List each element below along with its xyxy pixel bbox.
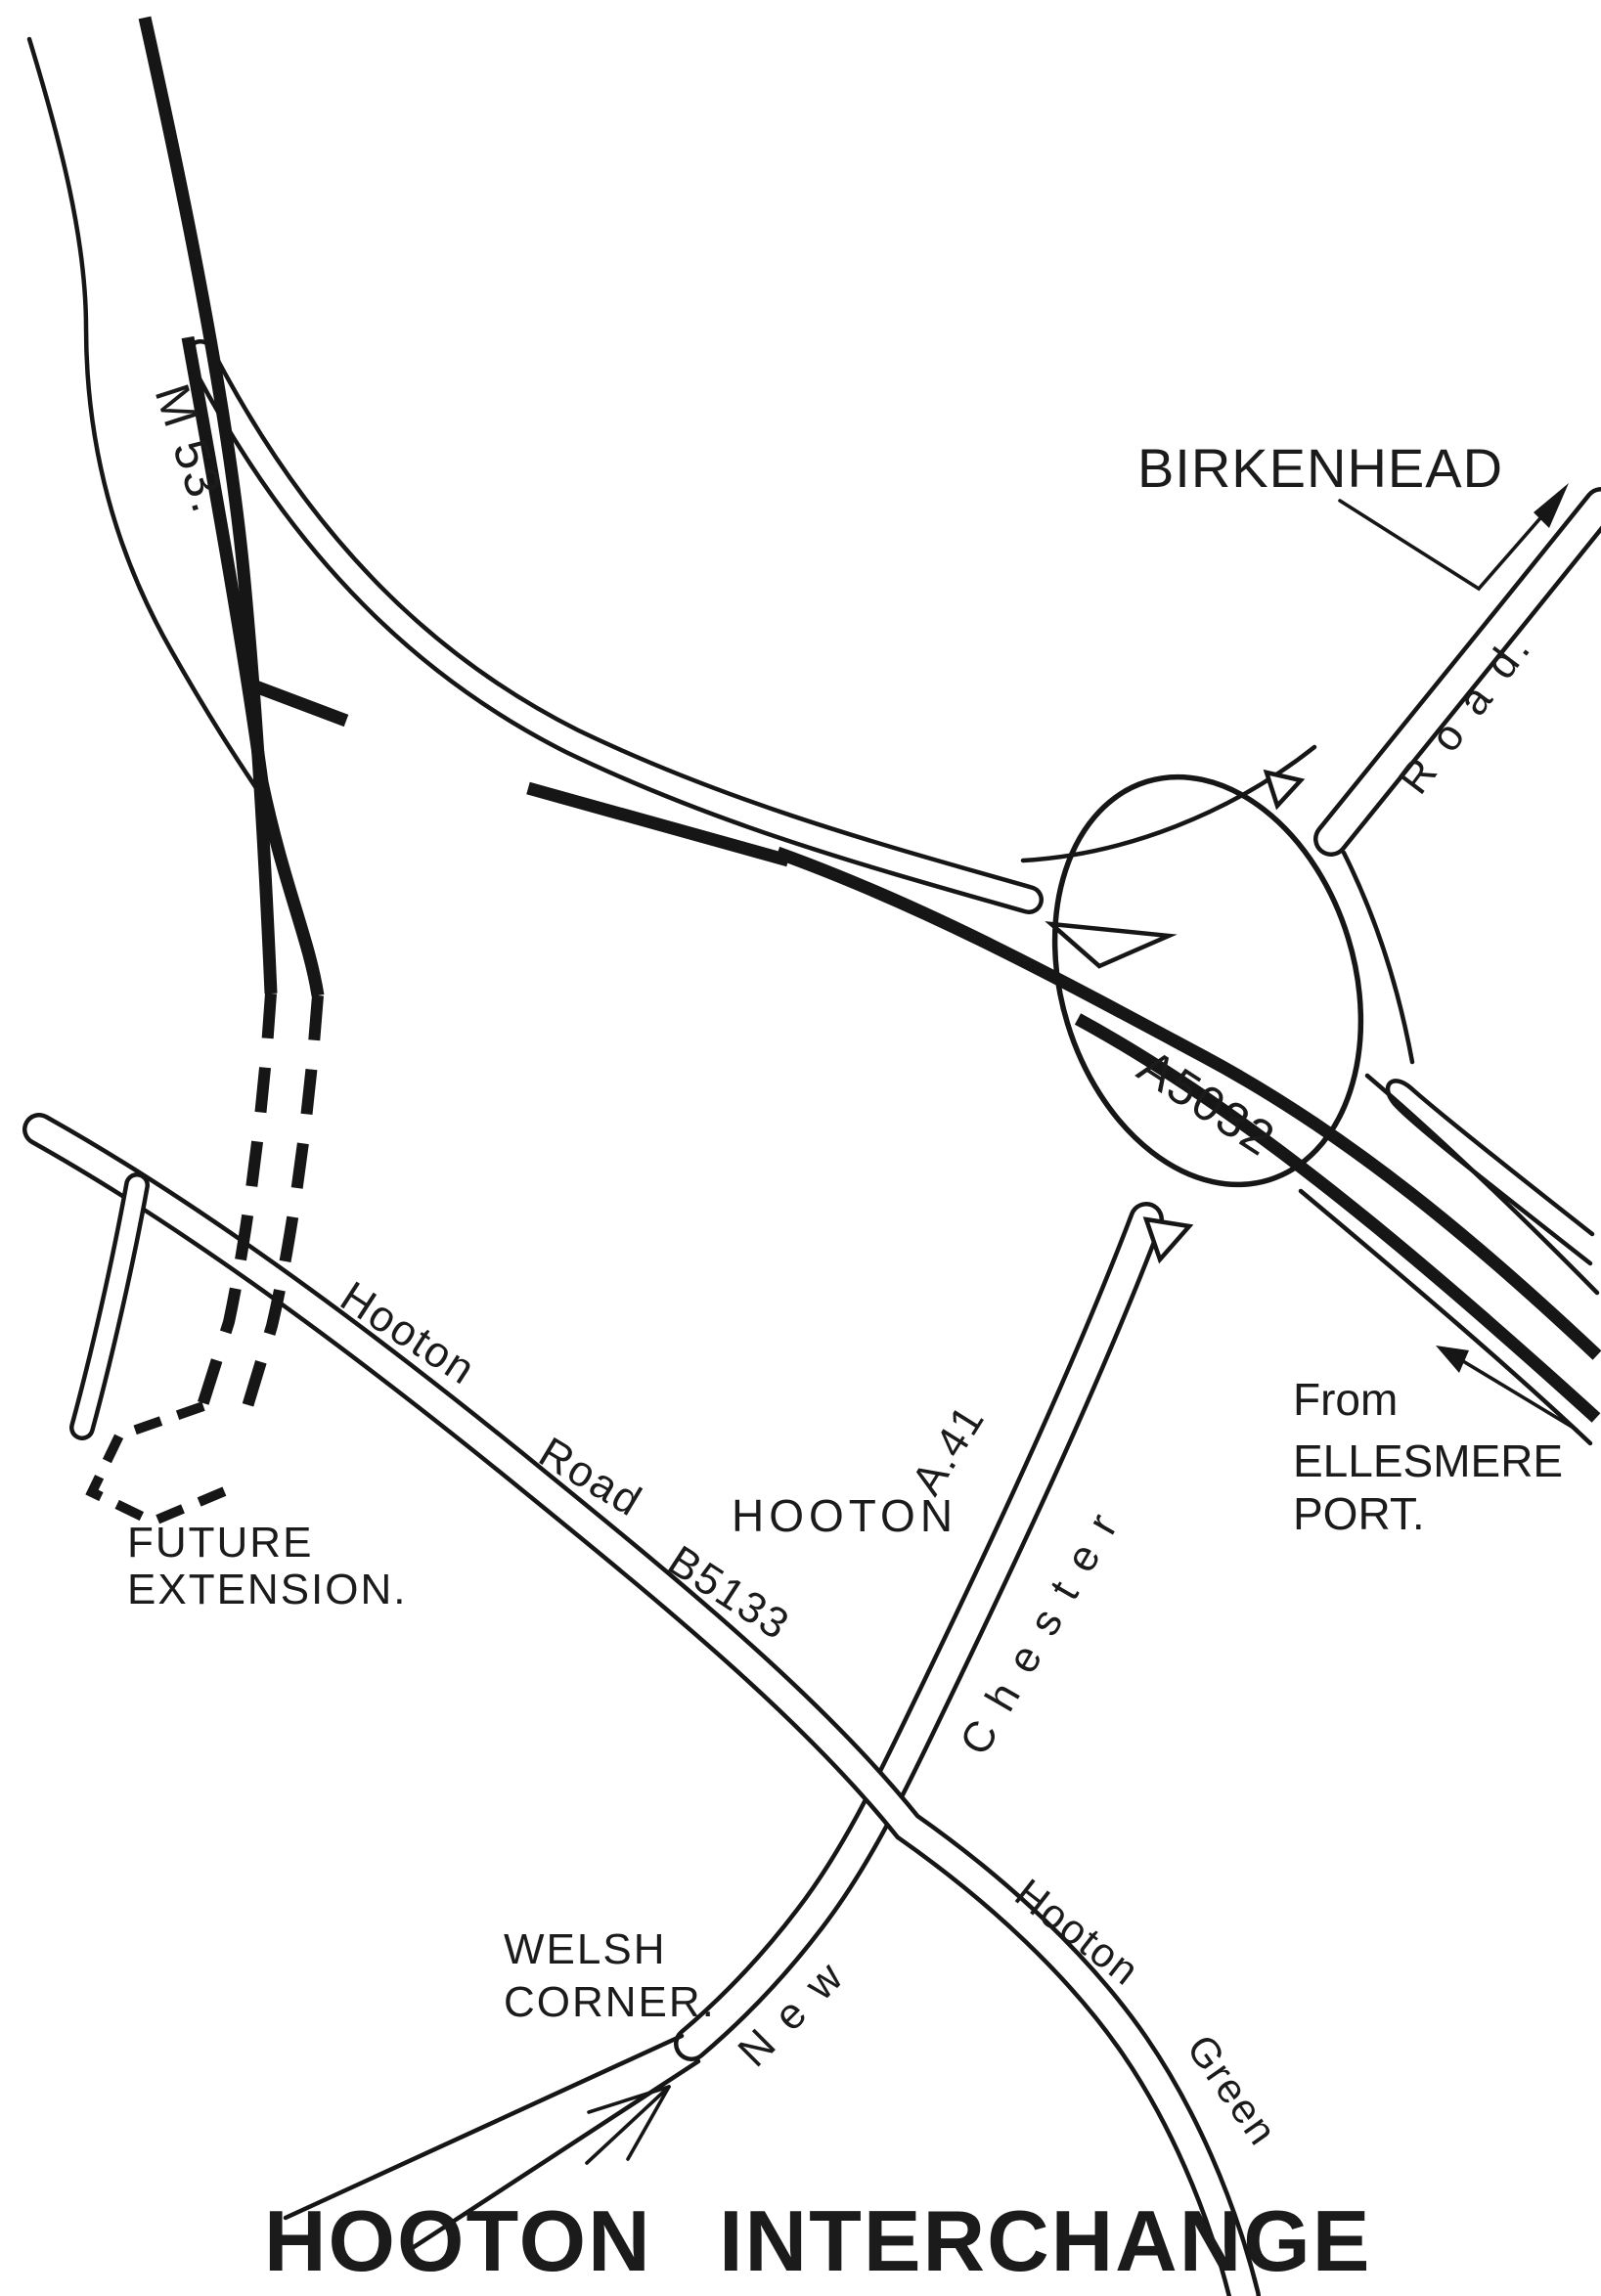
map-page: M 53. BIRKENHEAD R o a d. A5032 From ELL…: [0, 0, 1601, 2296]
label-corner: CORNER.: [504, 1978, 716, 2026]
map-title: HOOTON INTERCHANGE: [264, 2192, 1371, 2289]
label-hooton-village: HOOTON: [732, 1490, 957, 1541]
label-port: PORT.: [1293, 1488, 1425, 1539]
label-birkenhead: BIRKENHEAD: [1137, 437, 1503, 499]
hooton-interchange-map: M 53. BIRKENHEAD R o a d. A5032 From ELL…: [0, 0, 1601, 2296]
label-future: FUTURE: [127, 1519, 313, 1567]
label-ellesmere: ELLESMERE: [1293, 1435, 1563, 1486]
label-extension: EXTENSION.: [127, 1566, 408, 1613]
label-from: From: [1293, 1374, 1398, 1425]
label-welsh: WELSH: [504, 1925, 666, 1973]
